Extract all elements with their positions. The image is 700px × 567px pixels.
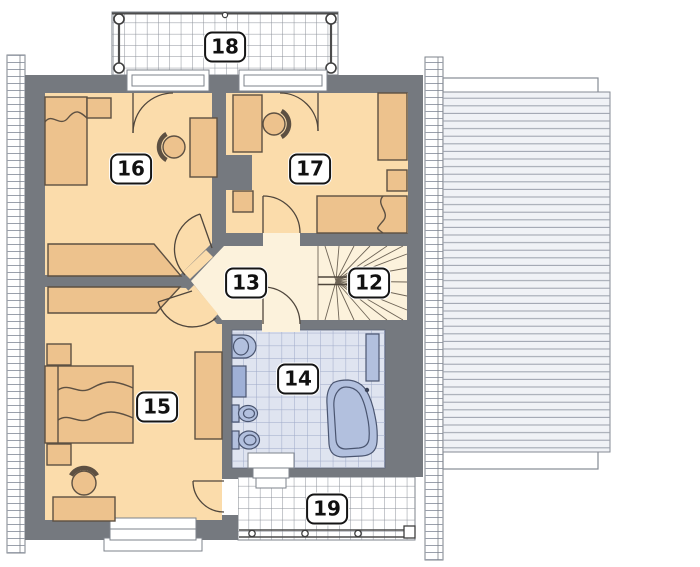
nightstand — [87, 98, 111, 118]
balcony-door-window-16 — [127, 70, 209, 91]
room-label-14: 14 — [277, 364, 319, 395]
balcony-door-window-17 — [239, 70, 327, 91]
railing-post — [326, 14, 336, 24]
chair-16 — [159, 134, 185, 160]
room-label-17: 17 — [289, 154, 331, 185]
railing-post — [114, 14, 124, 24]
room-number: 15 — [143, 395, 171, 419]
room-label-18: 18 — [204, 32, 246, 63]
radiator — [366, 334, 379, 381]
railing-post — [114, 63, 124, 73]
room-number: 13 — [232, 271, 260, 295]
room-label-16: 16 — [110, 154, 152, 185]
railing-post — [249, 530, 255, 536]
window-bedroom-15 — [104, 518, 202, 551]
room-number: 16 — [117, 157, 145, 181]
cabinet-17 — [233, 191, 253, 212]
desk-16 — [190, 118, 217, 177]
floor-plan-canvas: 18 16 17 13 12 14 15 19 — [0, 0, 700, 567]
railing-post — [355, 530, 361, 536]
desk-17 — [233, 95, 262, 152]
room-label-15: 15 — [136, 392, 178, 423]
wardrobe-17 — [378, 93, 407, 160]
room-label-12: 12 — [348, 268, 390, 299]
eaves-strip-left — [7, 55, 25, 553]
nightstand — [47, 444, 71, 465]
wardrobe-15-right — [195, 352, 222, 439]
washer — [232, 366, 246, 397]
wardrobe-15 — [48, 287, 180, 313]
room-number: 17 — [296, 157, 324, 181]
railing-post — [404, 526, 415, 538]
room-label-13: 13 — [225, 268, 267, 299]
chair-15 — [71, 468, 97, 495]
chimney-duct — [226, 155, 252, 190]
room-number: 14 — [284, 367, 312, 391]
eaves-strip-right — [425, 57, 443, 560]
chair-17 — [263, 111, 289, 137]
roof-plane-right — [443, 78, 610, 469]
railing-post — [302, 530, 308, 536]
room-number: 18 — [211, 35, 239, 59]
toilet — [232, 405, 258, 422]
room-number: 12 — [355, 271, 383, 295]
bathtub-drain — [365, 388, 369, 392]
double-bed-15 — [45, 366, 133, 443]
bed-17 — [317, 196, 407, 233]
railing-post — [222, 12, 227, 17]
nightstand — [387, 170, 407, 191]
bidet — [232, 431, 260, 449]
room-number: 19 — [313, 497, 341, 521]
desk-15 — [53, 497, 115, 521]
single-bed-16 — [45, 97, 87, 185]
room-label-19: 19 — [306, 494, 348, 525]
nightstand — [47, 344, 71, 365]
